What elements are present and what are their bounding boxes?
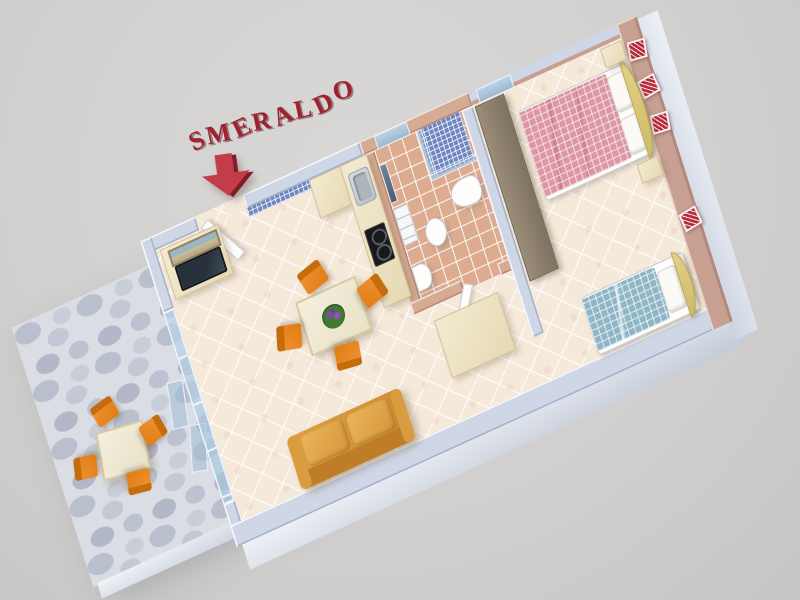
terrace-chair	[73, 454, 98, 482]
terrace-chair	[89, 395, 120, 428]
apartment-block	[140, 15, 733, 548]
flower-centerpiece	[319, 300, 348, 333]
apartment-plan	[0, 0, 800, 600]
floorplan-render: SMERALDO	[0, 0, 800, 600]
entrance-arrow	[199, 151, 252, 199]
red-artwork	[627, 37, 648, 61]
dining-chair	[276, 323, 302, 352]
red-artwork	[650, 110, 671, 135]
entrance-arrow-icon	[199, 151, 252, 199]
terrace-chair	[126, 468, 152, 496]
